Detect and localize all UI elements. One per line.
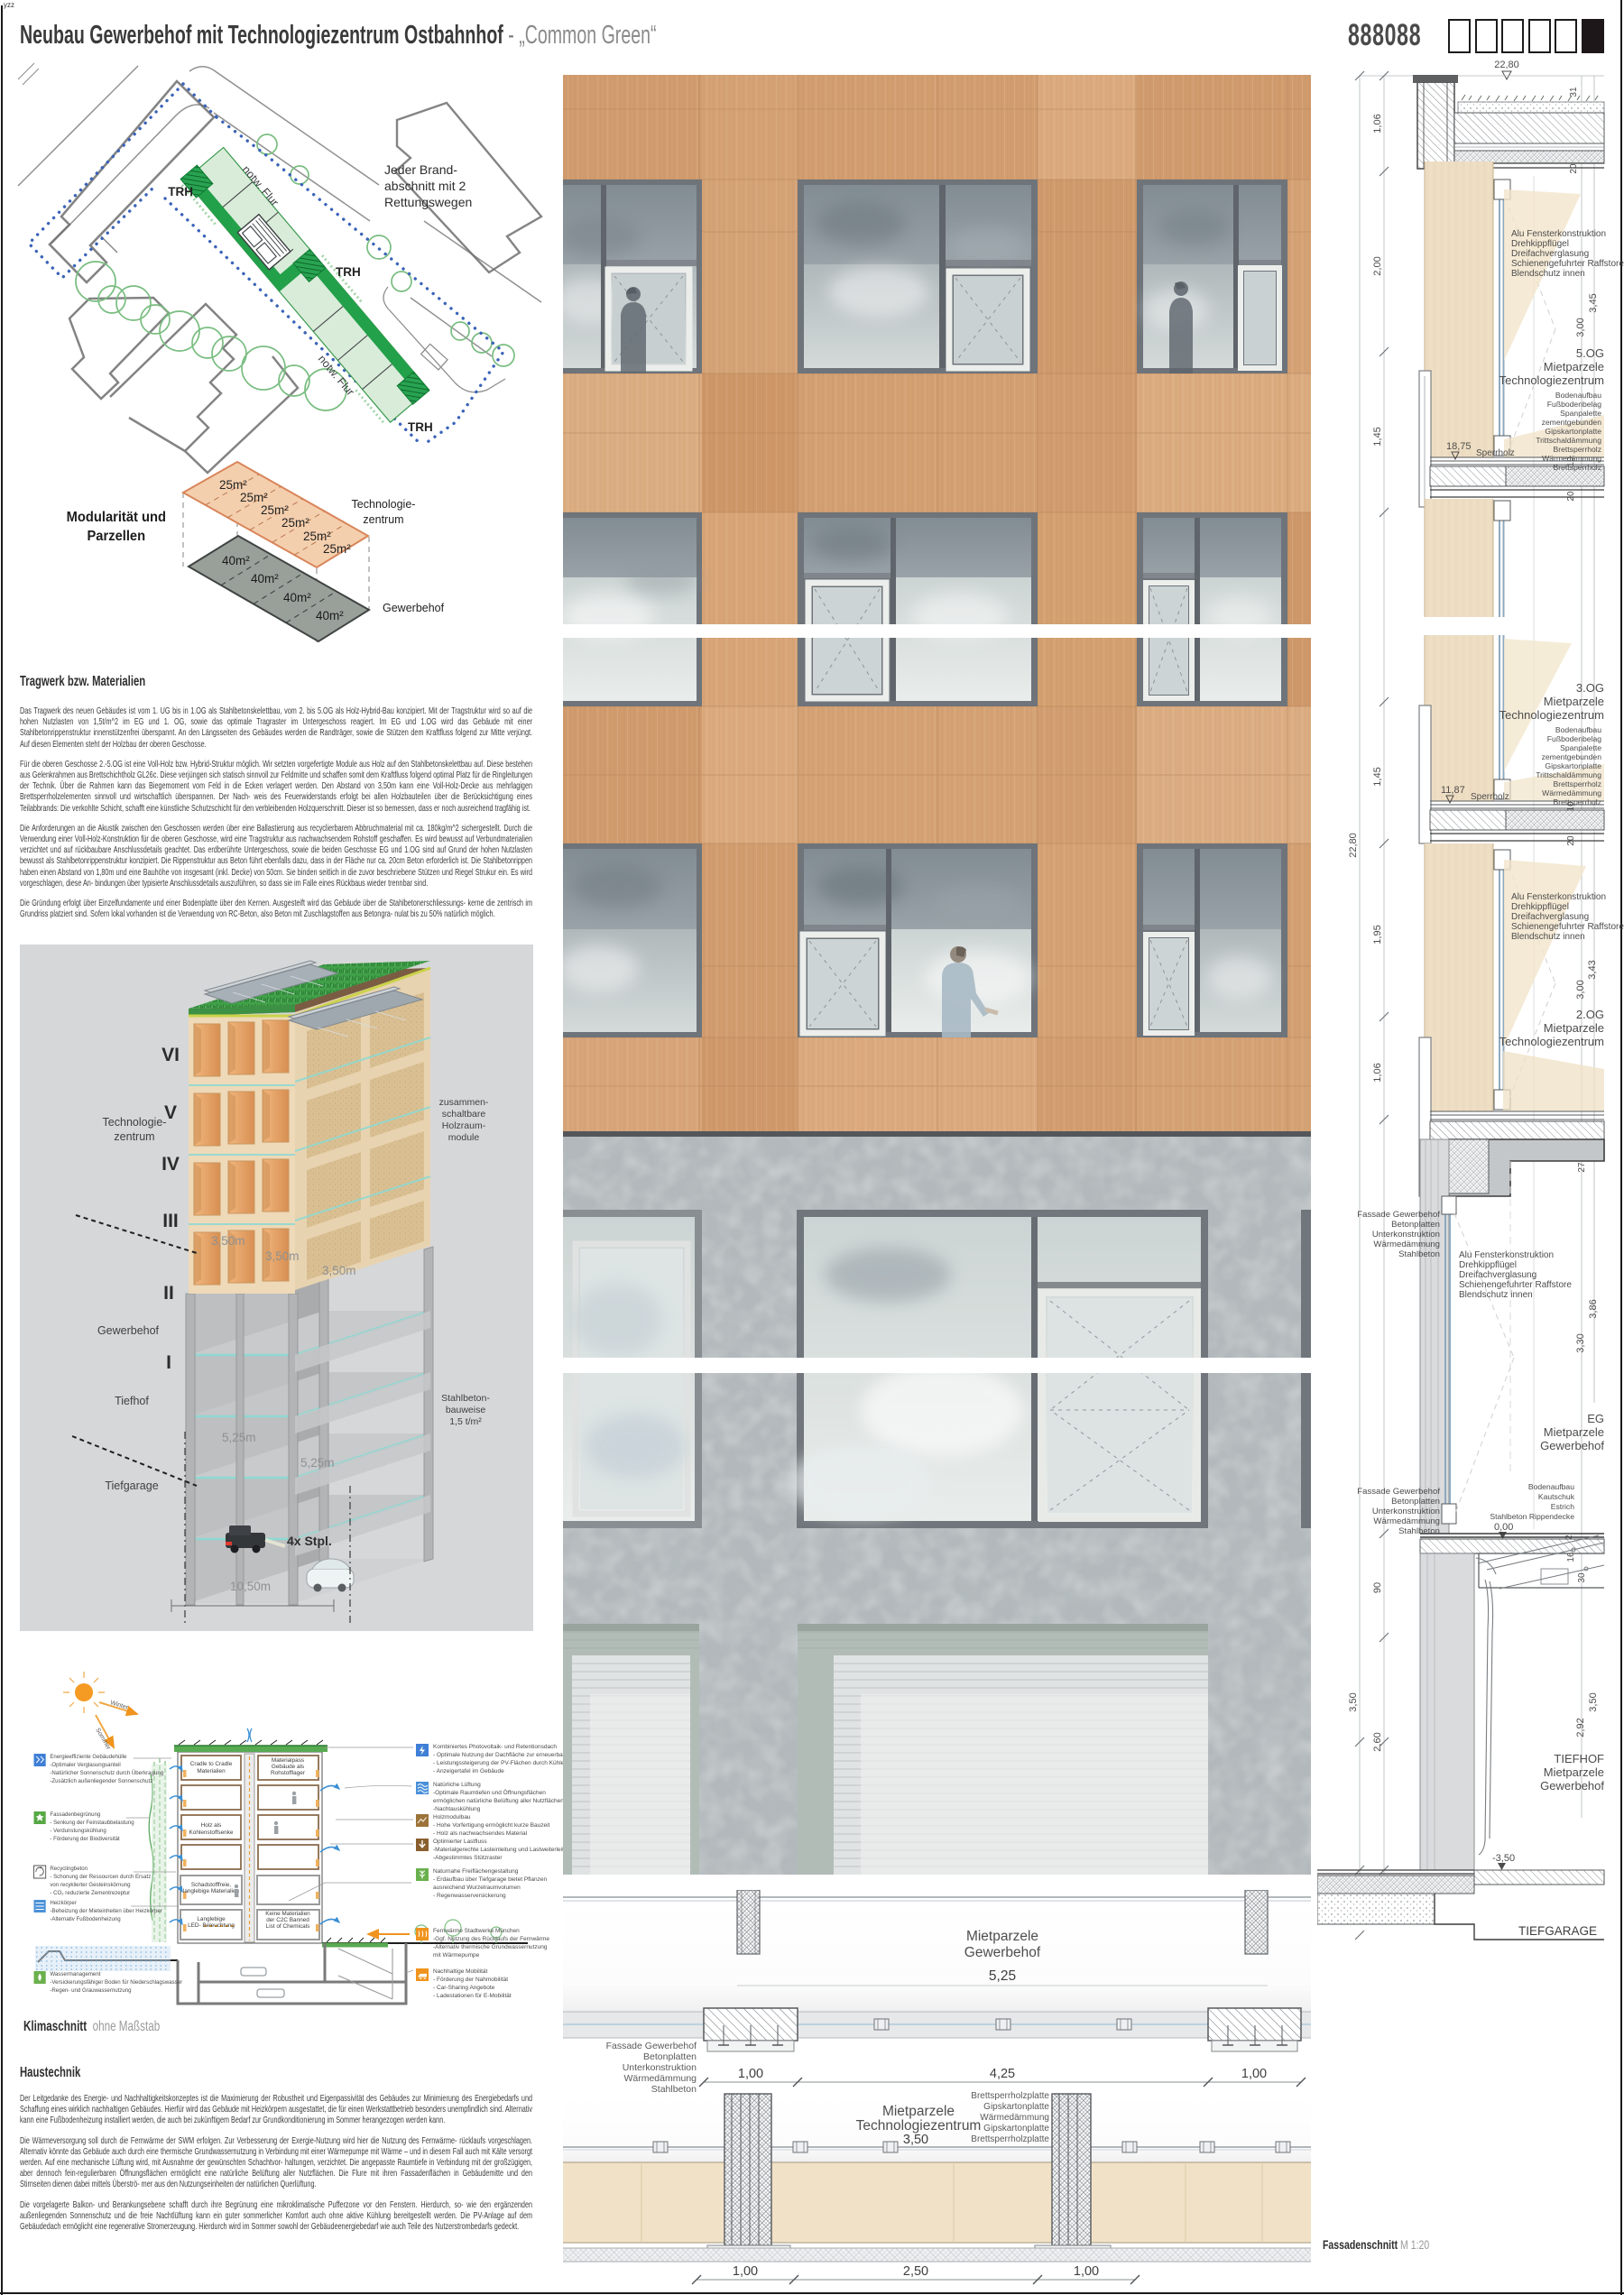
svg-text:bauweise: bauweise — [446, 1405, 486, 1415]
svg-text:Spanpalette: Spanpalette — [1560, 743, 1601, 752]
svg-text:LED- Beleuchtung: LED- Beleuchtung — [188, 1922, 235, 1929]
svg-text:Drehkippflügel: Drehkippflügel — [1511, 239, 1569, 249]
svg-text:Parzellen: Parzellen — [88, 528, 146, 544]
svg-text:zentrum: zentrum — [363, 513, 403, 526]
svg-text:zusammen-: zusammen- — [439, 1097, 489, 1108]
svg-text:Stahlbeton Rippendecke: Stahlbeton Rippendecke — [1490, 1512, 1574, 1521]
svg-text:1,45: 1,45 — [1372, 427, 1383, 446]
svg-text:Blendschutz innen: Blendschutz innen — [1511, 932, 1585, 942]
svg-text:Gipskartonplatte: Gipskartonplatte — [1545, 761, 1601, 770]
svg-text:Mietparzele: Mietparzele — [1544, 695, 1604, 708]
svg-text:- Holz als nachwachsendes Mate: - Holz als nachwachsendes Material — [433, 1830, 528, 1837]
svg-text:Sperrholz: Sperrholz — [1471, 792, 1509, 802]
svg-text:1,45: 1,45 — [1372, 767, 1383, 786]
svg-text:langlebige Materialien: langlebige Materialien — [183, 1888, 240, 1894]
svg-text:3,00: 3,00 — [1575, 980, 1586, 999]
svg-text:1,00: 1,00 — [738, 2067, 763, 2081]
svg-text:25m²: 25m² — [281, 516, 309, 530]
svg-text:25m²: 25m² — [240, 491, 268, 504]
svg-text:Technologiezentrum: Technologiezentrum — [1499, 373, 1604, 387]
svg-text:Alu Fensterkonstruktion: Alu Fensterkonstruktion — [1459, 1250, 1554, 1260]
svg-text:schaltbare: schaltbare — [442, 1109, 486, 1120]
svg-text:Brettsperrholzplatte: Brettsperrholzplatte — [971, 2134, 1049, 2144]
svg-text:Unterkonstruktion: Unterkonstruktion — [1372, 1507, 1440, 1516]
svg-text:3,50: 3,50 — [903, 2133, 928, 2147]
svg-text:- Regenwasserversickerung: - Regenwasserversickerung — [433, 1893, 506, 1899]
svg-text:Schadstofffreie,: Schadstofffreie, — [191, 1882, 231, 1888]
svg-text:Optimierter Lastfluss: Optimierter Lastfluss — [433, 1839, 487, 1845]
svg-text:Wärmedämmung: Wärmedämmung — [623, 2073, 697, 2084]
svg-text:Betonplatten: Betonplatten — [1391, 1497, 1440, 1507]
svg-text:Fußbodenbelag: Fußbodenbelag — [1547, 400, 1601, 409]
svg-text:1,5 t/m²: 1,5 t/m² — [449, 1416, 482, 1427]
svg-text:Brettsperrholzplatte: Brettsperrholzplatte — [971, 2091, 1049, 2101]
svg-text:Spanpalette: Spanpalette — [1560, 409, 1601, 418]
svg-text:3,30: 3,30 — [1575, 1333, 1586, 1352]
svg-text:5,25m: 5,25m — [222, 1431, 256, 1444]
svg-text:Heizkörper: Heizkörper — [50, 1900, 76, 1906]
svg-text:TRH: TRH — [168, 185, 193, 198]
svg-text:Gewerbehof: Gewerbehof — [383, 602, 445, 614]
svg-text:Schienengefuhrter Raffstore: Schienengefuhrter Raffstore — [1459, 1280, 1572, 1290]
svg-text:mit Wärmepumpe: mit Wärmepumpe — [433, 1952, 480, 1959]
svg-text:abschnitt mit 2: abschnitt mit 2 — [384, 179, 466, 193]
svg-text:Dreifachverglasung: Dreifachverglasung — [1459, 1270, 1536, 1280]
svg-text:der C2C Banned: der C2C Banned — [266, 1917, 309, 1923]
svg-text:2.OG: 2.OG — [1576, 1008, 1604, 1021]
svg-text:3,86: 3,86 — [1588, 1299, 1599, 1318]
svg-text:- Leistungssteigerung der PV-F: - Leistungssteigerung der PV-Flächen dur… — [433, 1760, 568, 1766]
svg-text:EG: EG — [1587, 1412, 1604, 1425]
svg-text:Holzmodulbau: Holzmodulbau — [433, 1814, 471, 1820]
svg-text:Materialien: Materialien — [197, 1768, 226, 1774]
svg-text:25m²: 25m² — [303, 530, 331, 543]
svg-text:TRH: TRH — [408, 420, 433, 434]
svg-text:Sperrholz: Sperrholz — [1476, 448, 1515, 458]
svg-text:Langlebige: Langlebige — [197, 1916, 226, 1922]
svg-text:3,00: 3,00 — [1575, 318, 1586, 336]
svg-text:25m²: 25m² — [261, 503, 289, 517]
svg-text:- Förderung der Nahmobilität: - Förderung der Nahmobilität — [433, 1977, 508, 1983]
svg-text:10,50m: 10,50m — [230, 1580, 271, 1593]
svg-text:Fernwärme Stadtwerke München: Fernwärme Stadtwerke München — [433, 1928, 520, 1934]
svg-text:90: 90 — [1372, 1582, 1383, 1593]
svg-text:3,50m: 3,50m — [322, 1264, 356, 1277]
svg-text:Betonplatten: Betonplatten — [643, 2051, 697, 2062]
svg-text:VI: VI — [161, 1045, 180, 1065]
svg-text:Stahlbeton: Stahlbeton — [651, 2084, 697, 2095]
svg-text:Mietparzele: Mietparzele — [1544, 1765, 1604, 1779]
svg-text:Natürliche Lüftung: Natürliche Lüftung — [433, 1782, 481, 1788]
svg-text:IV: IV — [161, 1154, 180, 1175]
svg-text:II: II — [163, 1283, 174, 1304]
svg-text:Brettsperrholz: Brettsperrholz — [1554, 779, 1602, 788]
svg-text:Mietparzele: Mietparzele — [1544, 360, 1604, 373]
svg-text:2,50: 2,50 — [903, 2264, 928, 2279]
svg-text:Bodenaufbau: Bodenaufbau — [1528, 1482, 1574, 1491]
svg-text:Tiefhof: Tiefhof — [115, 1395, 149, 1407]
svg-text:Bodenaufbau: Bodenaufbau — [1555, 391, 1601, 400]
svg-text:Energieeffiziente Gebäudehülle: Energieeffiziente Gebäudehülle — [50, 1754, 126, 1760]
svg-text:Technologiezentrum: Technologiezentrum — [856, 2118, 982, 2134]
svg-text:I: I — [166, 1352, 171, 1373]
svg-text:Rohstofflager: Rohstofflager — [271, 1770, 306, 1776]
svg-text:Mietparzele: Mietparzele — [1544, 1021, 1604, 1035]
svg-text:List of Chemicals: List of Chemicals — [266, 1923, 310, 1930]
svg-text:- CO₂ reduzierte Zementrezeptu: - CO₂ reduzierte Zementrezeptur — [50, 1890, 130, 1896]
svg-text:Cradle to Cradle: Cradle to Cradle — [190, 1761, 233, 1767]
svg-text:- Car-Sharing Angebote: - Car-Sharing Angebote — [433, 1985, 495, 1991]
svg-text:0,00: 0,00 — [1494, 1522, 1513, 1533]
svg-text:Schienengefuhrter Raffstore: Schienengefuhrter Raffstore — [1511, 922, 1624, 932]
svg-text:Estrich: Estrich — [1551, 1502, 1574, 1511]
svg-text:Holz als: Holz als — [201, 1822, 222, 1829]
svg-text:Mietparzele: Mietparzele — [966, 1929, 1038, 1944]
svg-text:40m²: 40m² — [316, 609, 344, 622]
svg-text:-Alternativ Fußbodenheizung: -Alternativ Fußbodenheizung — [50, 1916, 121, 1922]
svg-text:Rettungswegen: Rettungswegen — [384, 195, 472, 209]
svg-text:Wärmedämmung: Wärmedämmung — [1542, 788, 1601, 797]
svg-text:Technologiezentrum: Technologiezentrum — [1499, 1035, 1604, 1048]
svg-text:20: 20 — [1569, 163, 1579, 174]
svg-text:25m²: 25m² — [323, 542, 351, 556]
svg-text:Fassade Gewerbehof: Fassade Gewerbehof — [1357, 1210, 1440, 1220]
svg-text:Fassadenbegrünung: Fassadenbegrünung — [50, 1811, 100, 1818]
svg-text:-Alternativ thermische Grundwa: -Alternativ thermische Grundwassernutzun… — [433, 1944, 548, 1950]
svg-text:1,06: 1,06 — [1372, 114, 1383, 133]
svg-text:3,50m: 3,50m — [211, 1234, 245, 1248]
svg-text:1,00: 1,00 — [1241, 2067, 1267, 2081]
svg-text:- Anzeigertafel im Gebäude: - Anzeigertafel im Gebäude — [433, 1768, 504, 1774]
svg-text:-Ggf. Nutzung des Rücklaufs de: -Ggf. Nutzung des Rücklaufs der Fernwärm… — [433, 1936, 549, 1942]
svg-text:Modularität und: Modularität und — [67, 509, 166, 525]
svg-text:Trittschaldämmung: Trittschaldämmung — [1536, 770, 1601, 779]
svg-text:Kautschuk: Kautschuk — [1538, 1492, 1575, 1501]
svg-text:5.OG: 5.OG — [1576, 346, 1604, 360]
svg-text:Gebäude als: Gebäude als — [272, 1764, 304, 1770]
svg-text:Materialpass: Materialpass — [272, 1757, 304, 1764]
svg-text:-Materialgerechte Lasteinleitu: -Materialgerechte Lasteinleitung und Las… — [433, 1847, 568, 1853]
svg-text:18,75: 18,75 — [1446, 441, 1472, 452]
svg-text:Recyclingbeton: Recyclingbeton — [50, 1866, 88, 1872]
svg-text:22,80: 22,80 — [1348, 833, 1359, 858]
svg-text:zementgebunden: zementgebunden — [1542, 752, 1602, 761]
svg-text:31: 31 — [1569, 87, 1579, 97]
svg-text:Stahlbeton: Stahlbeton — [1398, 1526, 1440, 1536]
svg-text:Trittschaldämmung: Trittschaldämmung — [1536, 436, 1601, 445]
svg-text:3,50: 3,50 — [1588, 1692, 1599, 1711]
svg-text:zementgebunden: zementgebunden — [1542, 418, 1602, 427]
svg-text:4,25: 4,25 — [990, 2067, 1015, 2081]
svg-text:Blendschutz innen: Blendschutz innen — [1459, 1290, 1533, 1300]
svg-text:2,00: 2,00 — [1372, 256, 1383, 275]
svg-text:- Senkung der Feinstaubbelastu: - Senkung der Feinstaubbelastung — [50, 1820, 134, 1826]
svg-text:Stahlbeton-: Stahlbeton- — [441, 1393, 490, 1404]
svg-text:Fassade Gewerbehof: Fassade Gewerbehof — [606, 2041, 697, 2051]
svg-text:TIEFHOF: TIEFHOF — [1554, 1752, 1604, 1765]
svg-text:Naturnahe Freiflächengestaltun: Naturnahe Freiflächengestaltung — [433, 1868, 519, 1875]
svg-text:3.OG: 3.OG — [1576, 681, 1604, 695]
svg-text:40m²: 40m² — [251, 572, 279, 585]
svg-text:4x Stpl.: 4x Stpl. — [287, 1534, 332, 1548]
svg-text:-Versickerungsfähiger Boden fü: -Versickerungsfähiger Boden für Niedersc… — [50, 1979, 182, 1986]
svg-text:- Förderung der Biodiversität: - Förderung der Biodiversität — [50, 1836, 120, 1842]
svg-text:Unterkonstruktion: Unterkonstruktion — [1372, 1230, 1440, 1240]
svg-text:Brettsperrholz: Brettsperrholz — [1554, 445, 1602, 454]
svg-text:Dreifachverglasung: Dreifachverglasung — [1511, 912, 1589, 922]
svg-text:40m²: 40m² — [222, 554, 250, 567]
svg-text:module: module — [448, 1132, 480, 1143]
svg-text:-Abgestimmtes Stützraster: -Abgestimmtes Stützraster — [433, 1855, 503, 1861]
svg-text:11,87: 11,87 — [1441, 785, 1465, 796]
svg-text:Gipskartonplatte: Gipskartonplatte — [983, 2124, 1049, 2134]
svg-text:Tiefgarage: Tiefgarage — [105, 1479, 158, 1492]
svg-text:Alu Fensterkonstruktion: Alu Fensterkonstruktion — [1511, 229, 1606, 239]
svg-text:-Nachtauskühlung: -Nachtauskühlung — [433, 1806, 481, 1812]
svg-text:Gewerbehof: Gewerbehof — [1540, 1439, 1604, 1452]
svg-text:5,25: 5,25 — [989, 1968, 1016, 1984]
svg-text:Gipskartonplatte: Gipskartonplatte — [1545, 427, 1601, 436]
svg-text:- Hohe Vorfertigung ermöglicht: - Hohe Vorfertigung ermöglicht kurze Bau… — [433, 1822, 550, 1829]
svg-text:Blendschutz innen: Blendschutz innen — [1511, 269, 1585, 279]
svg-text:-Beheizung der Mieteinheiten ü: -Beheizung der Mieteinheiten über Heizkö… — [50, 1908, 161, 1914]
svg-text:Jeder Brand-: Jeder Brand- — [384, 162, 457, 177]
svg-text:Wärmedämmung: Wärmedämmung — [980, 2113, 1049, 2123]
svg-text:Gewerbehof: Gewerbehof — [97, 1324, 160, 1337]
svg-text:2,92: 2,92 — [1575, 1718, 1586, 1737]
svg-text:Technologiezentrum: Technologiezentrum — [1499, 708, 1604, 722]
svg-text:Wärmedämmung: Wärmedämmung — [1373, 1240, 1440, 1249]
svg-text:1,00: 1,00 — [733, 2264, 758, 2279]
svg-text:20: 20 — [1566, 491, 1576, 502]
svg-text:- Optimale Nutzung der Dachflä: - Optimale Nutzung der Dachfläche zur er… — [433, 1752, 568, 1758]
svg-text:30: 30 — [1577, 1572, 1587, 1583]
svg-text:III: III — [162, 1211, 179, 1231]
svg-text:Unterkonstruktion: Unterkonstruktion — [623, 2062, 697, 2073]
svg-text:Brettsperrholz: Brettsperrholz — [1554, 797, 1602, 806]
svg-text:27: 27 — [1577, 1162, 1587, 1173]
svg-text:Gewerbehof: Gewerbehof — [1540, 1779, 1604, 1793]
svg-text:-3,50: -3,50 — [1492, 1853, 1515, 1864]
svg-text:22,80: 22,80 — [1494, 60, 1519, 70]
svg-text:Winter: Winter — [109, 1700, 129, 1711]
svg-text:1,95: 1,95 — [1372, 925, 1383, 944]
svg-text:-Optimaler Verglasungsanteil: -Optimaler Verglasungsanteil — [50, 1762, 120, 1768]
svg-text:- Verdunstungskühlung: - Verdunstungskühlung — [50, 1828, 106, 1834]
svg-text:Technologie-: Technologie- — [103, 1116, 167, 1129]
svg-text:3,50: 3,50 — [1348, 1692, 1359, 1711]
svg-text:Dreifachverglasung: Dreifachverglasung — [1511, 249, 1589, 259]
svg-text:Kombiniertes Photovoltaik- und: Kombiniertes Photovoltaik- und Retention… — [433, 1744, 557, 1750]
svg-text:Drehkippflügel: Drehkippflügel — [1511, 902, 1569, 912]
svg-text:Kohlenstoffsenke: Kohlenstoffsenke — [189, 1830, 234, 1836]
svg-text:25m²: 25m² — [219, 478, 247, 492]
svg-text:Gewerbehof: Gewerbehof — [964, 1945, 1041, 1960]
svg-text:Fußbodenbelag: Fußbodenbelag — [1547, 734, 1601, 743]
svg-text:Stahlbeton: Stahlbeton — [1398, 1249, 1440, 1259]
svg-text:Schienengefuhrter Raffstore: Schienengefuhrter Raffstore — [1511, 259, 1624, 269]
svg-text:Holzraum-: Holzraum- — [442, 1120, 486, 1131]
svg-text:zentrum: zentrum — [114, 1130, 154, 1143]
svg-text:Fassade Gewerbehof: Fassade Gewerbehof — [1357, 1487, 1440, 1497]
svg-text:3,43: 3,43 — [1587, 960, 1598, 979]
svg-text:Drehkippflügel: Drehkippflügel — [1459, 1260, 1517, 1270]
svg-text:3,45: 3,45 — [1588, 293, 1599, 312]
svg-text:ausreichend Wurzelraumvolumen: ausreichend Wurzelraumvolumen — [433, 1885, 521, 1891]
svg-text:TIEFGARAGE: TIEFGARAGE — [1518, 1924, 1597, 1938]
svg-text:5,25m: 5,25m — [300, 1456, 335, 1470]
svg-text:2,60: 2,60 — [1372, 1732, 1383, 1751]
svg-text:1,00: 1,00 — [1074, 2264, 1099, 2279]
svg-text:- Schonung der Ressourcen durc: - Schonung der Ressourcen durch Ersatz — [50, 1874, 151, 1880]
svg-text:Nachhaltige Mobilität: Nachhaltige Mobilität — [433, 1968, 488, 1975]
svg-text:- Ladestationen für E-Mobilitä: - Ladestationen für E-Mobilität — [433, 1993, 512, 1999]
svg-text:Gipskartonplatte: Gipskartonplatte — [983, 2102, 1049, 2112]
svg-text:Keine Materialien: Keine Materialien — [265, 1911, 310, 1917]
svg-text:-Zusätzlich außenliegender Son: -Zusätzlich außenliegender Sonnenschutz — [50, 1778, 152, 1784]
svg-text:Wärmedämmung: Wärmedämmung — [1373, 1516, 1440, 1526]
svg-text:-Optimale Raumtiefen und Öffnu: -Optimale Raumtiefen und Öffnungsflächen — [433, 1789, 546, 1796]
svg-text:Betonplatten: Betonplatten — [1391, 1220, 1440, 1230]
svg-text:ermöglichen natürliche Belüftu: ermöglichen natürliche Belüftung aller N… — [433, 1798, 564, 1804]
svg-text:Mietparzele: Mietparzele — [882, 2104, 955, 2119]
svg-text:Mietparzele: Mietparzele — [1544, 1425, 1604, 1439]
svg-text:3,50m: 3,50m — [265, 1249, 300, 1263]
svg-text:TRH: TRH — [336, 265, 361, 279]
svg-text:von recyklierter Gesteinskörnu: von recyklierter Gesteinskörnung — [50, 1882, 131, 1888]
svg-text:Bodenaufbau: Bodenaufbau — [1555, 725, 1601, 734]
svg-text:Alu Fensterkonstruktion: Alu Fensterkonstruktion — [1511, 892, 1606, 902]
svg-text:- Erdaufbau über Tiefgarage bi: - Erdaufbau über Tiefgarage bietet Pflan… — [433, 1876, 547, 1883]
svg-text:-Regen- und Grauwassernutzung: -Regen- und Grauwassernutzung — [50, 1987, 132, 1994]
svg-text:Technologie-: Technologie- — [352, 498, 416, 511]
svg-text:1,06: 1,06 — [1372, 1063, 1383, 1082]
svg-text:-Natürlicher Sonnenschutz durc: -Natürlicher Sonnenschutz durch Überkrag… — [50, 1769, 163, 1776]
svg-text:40m²: 40m² — [283, 591, 311, 604]
svg-text:Brettsperrholz: Brettsperrholz — [1554, 463, 1602, 472]
svg-text:Wassermanagement: Wassermanagement — [50, 1971, 100, 1977]
svg-text:Wärmedämmung: Wärmedämmung — [1542, 454, 1601, 463]
